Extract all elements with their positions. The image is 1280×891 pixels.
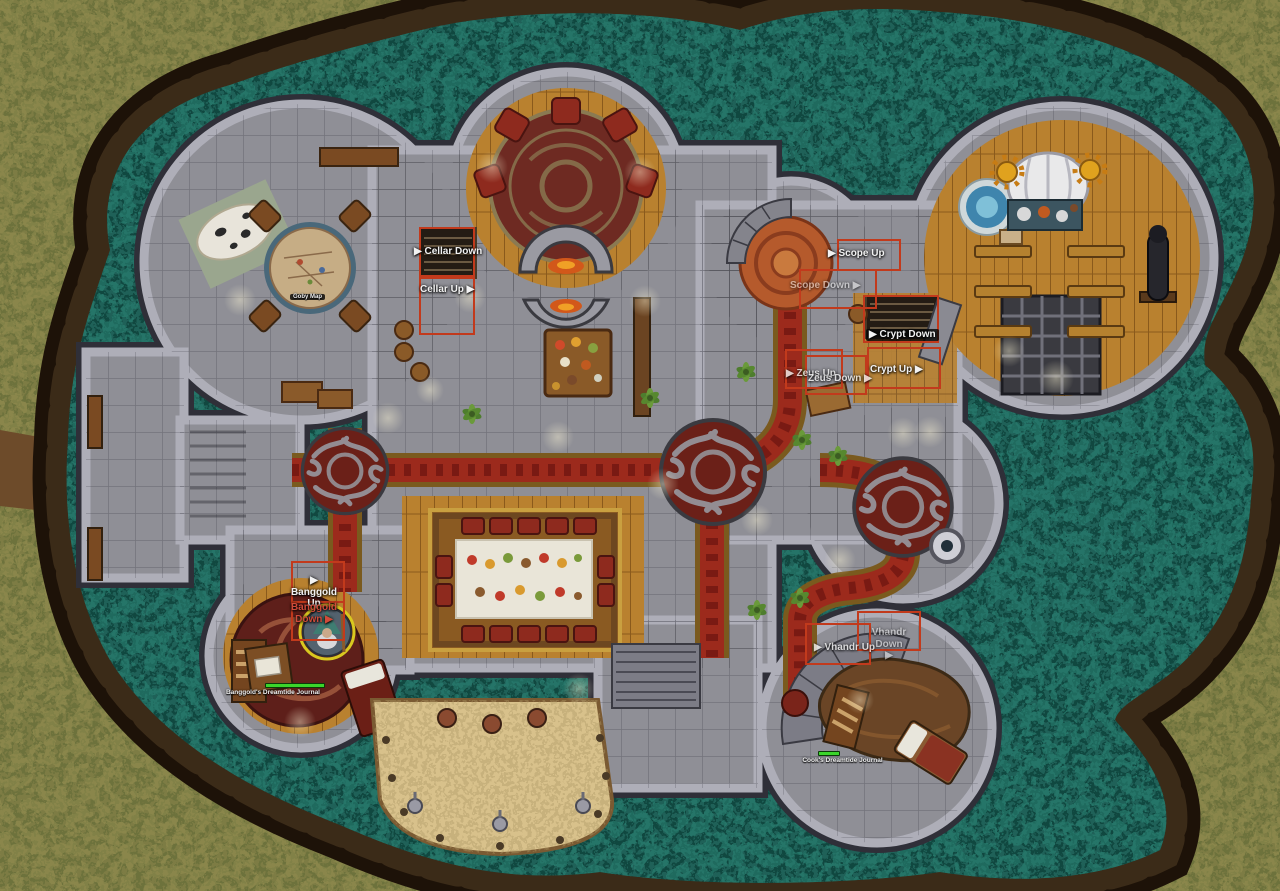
bridge-steps [190,432,246,516]
sideboard [320,148,398,166]
stairway-label-banggold-down[interactable]: Banggold Down ▶ [290,602,338,625]
stool [1000,230,1022,244]
banquet-table[interactable] [456,540,592,618]
stairway-label-zeus-down[interactable]: Zeus Down ▶ [808,373,872,385]
stairway-label-crypt-up[interactable]: Crypt Up ▶ [870,364,923,376]
south-stairs [612,644,700,708]
armchair [782,690,808,716]
rosette-rug-west [302,428,387,513]
map-table[interactable] [270,228,350,308]
gate-door-south[interactable] [88,528,102,580]
map-canvas [0,0,1280,891]
gate-door-north[interactable] [88,396,102,448]
vtt-scene: ▶ Cellar Down Cellar Up ▶ ▶ Scope Up Sco… [0,0,1280,891]
stairway-label-vhandr-up[interactable]: ▶ Vhandr Up [814,642,875,654]
cook-journal-hp-bar [818,751,840,756]
stairway-label-crypt-down[interactable]: ▶ Crypt Down [866,329,939,341]
well-tower [931,530,963,562]
great-hall [430,510,620,650]
stairway-label-scope-up[interactable]: ▶ Scope Up [828,248,885,260]
stairway-label-cellar-up[interactable]: Cellar Up ▶ [420,284,474,296]
stairway-label-cellar-down[interactable]: ▶ Cellar Down [414,246,482,258]
courtyard [372,700,612,854]
banggold-journal-hp-bar [265,683,325,688]
stairway-label-scope-down[interactable]: Scope Down ▶ [790,280,860,292]
